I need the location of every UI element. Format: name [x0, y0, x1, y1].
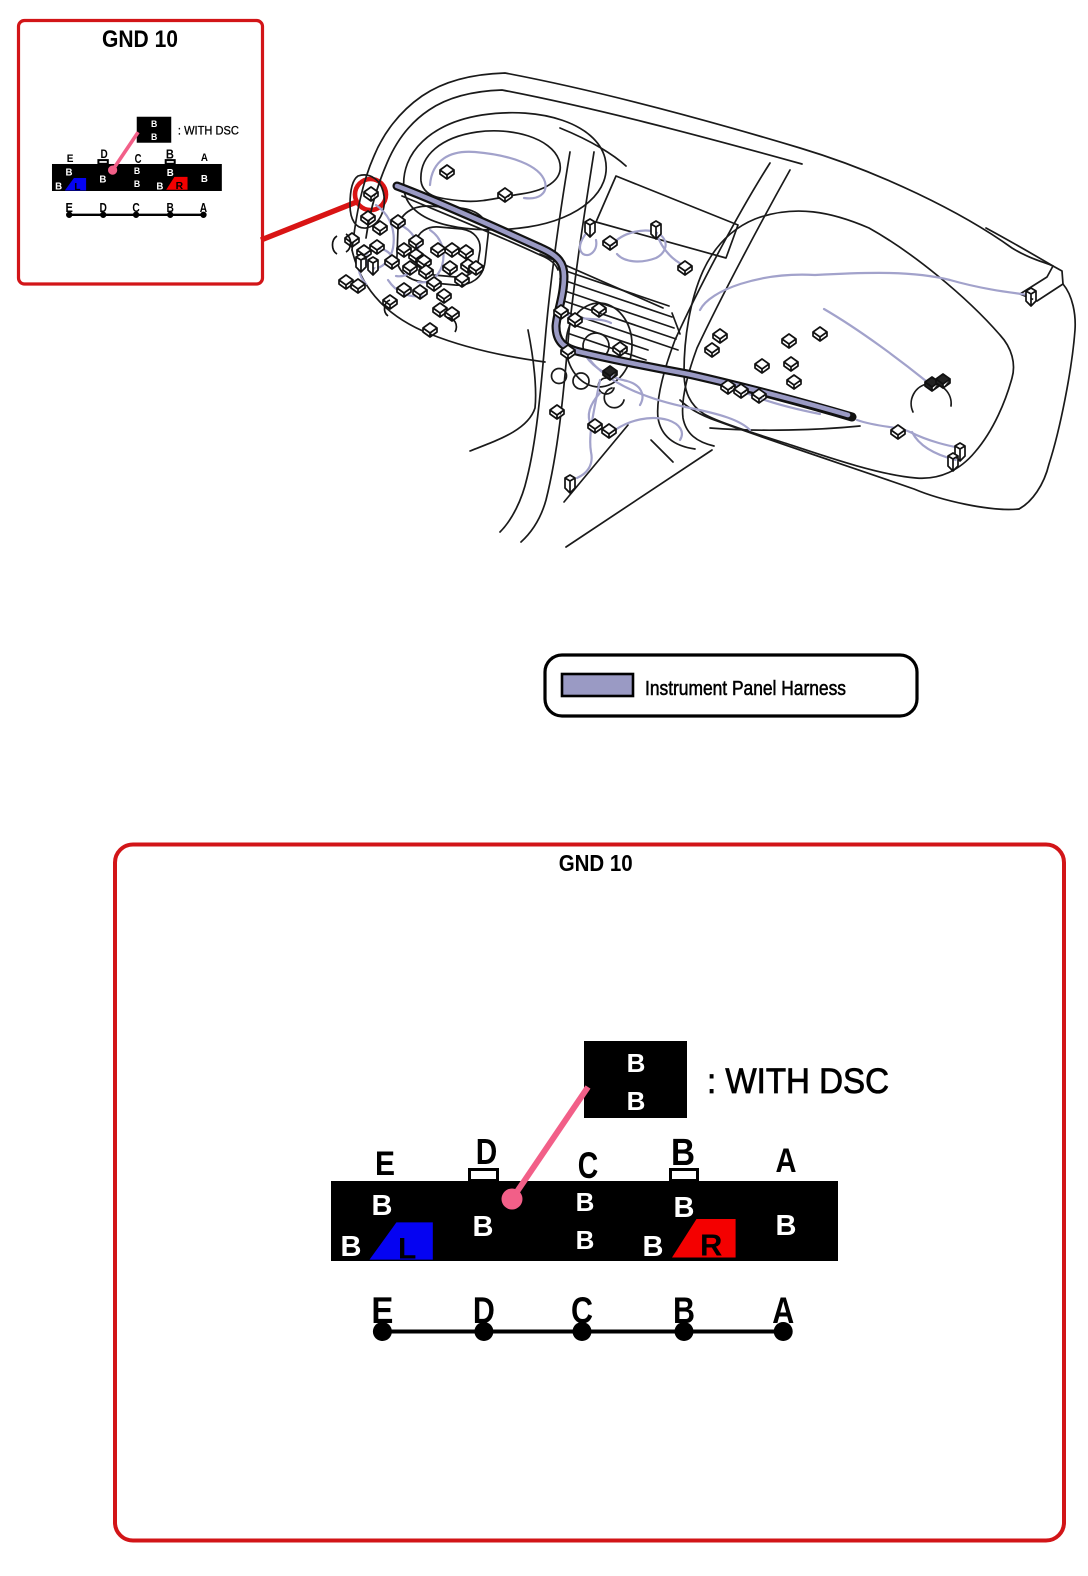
svg-text:GND 10: GND 10 — [102, 26, 178, 53]
svg-text:GND 10: GND 10 — [559, 850, 633, 876]
svg-text:Instrument Panel Harness: Instrument Panel Harness — [645, 677, 846, 700]
